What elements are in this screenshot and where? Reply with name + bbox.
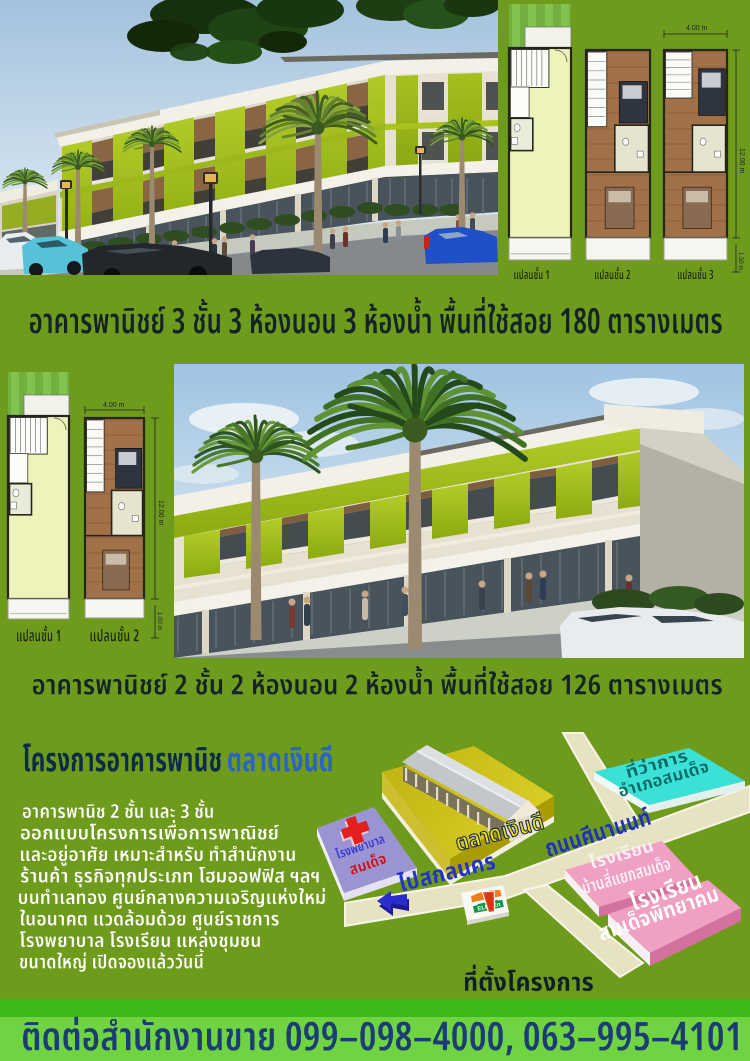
svg-text:1.00 m: 1.00 m [156, 612, 162, 630]
svg-text:12.00 m: 12.00 m [157, 500, 164, 525]
svg-text:12.00 m: 12.00 m [738, 148, 745, 173]
svg-text:4.00 m: 4.00 m [103, 402, 125, 409]
svg-text:1.50 m: 1.50 m [737, 252, 743, 270]
svg-text:4.00 m: 4.00 m [686, 25, 708, 32]
